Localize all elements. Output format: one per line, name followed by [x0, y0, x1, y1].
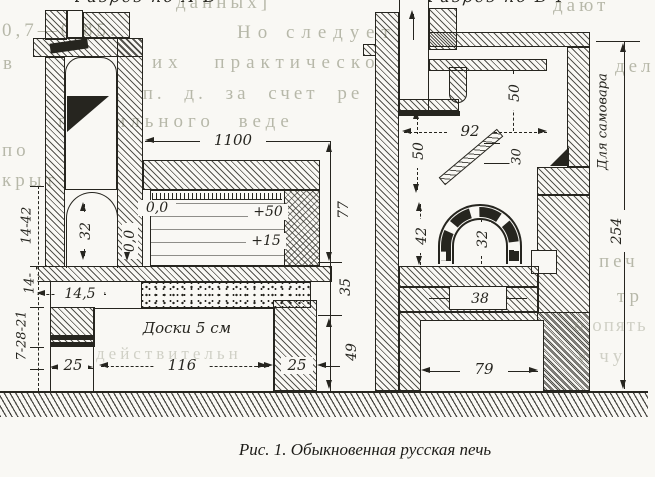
dim-total-height: 254	[609, 210, 625, 252]
pier-course-band	[50, 335, 95, 340]
overlay-text: Но следует	[237, 23, 397, 42]
dim-base-opening: 79	[460, 361, 508, 378]
dim-line-38	[429, 298, 449, 299]
dim-arrow	[326, 143, 332, 152]
rs-top-channel-lower	[429, 59, 547, 71]
samovar-label: Для самовара	[596, 50, 611, 194]
overlay-text: их практическо	[152, 53, 381, 72]
dim-arrow	[145, 137, 154, 143]
dim-chain-14: 14-	[23, 270, 38, 298]
chain-tick	[318, 315, 342, 316]
overlay-text: о опять	[574, 316, 648, 335]
dim-chain-14-42: 14-42	[20, 200, 35, 252]
chimney-cap-right	[83, 12, 130, 38]
dim-arrow	[421, 367, 430, 373]
boards-label: Доски 5 см	[110, 320, 264, 337]
draft-arrow-icon	[409, 10, 415, 19]
right-chain-line	[330, 141, 331, 391]
dim-arch-width: 32	[475, 222, 491, 256]
pier-course-band	[50, 342, 95, 346]
level-plus15-label: +15	[246, 233, 286, 249]
dim-base-height: 49	[344, 339, 360, 365]
dim-arrow	[538, 128, 547, 134]
dim-left-opening: 25	[58, 357, 88, 374]
chain-tick	[30, 307, 44, 308]
dim-arrow	[413, 184, 419, 193]
chain-tick	[30, 266, 44, 267]
dim-right-pier: 25	[281, 357, 313, 374]
overlay-text: дел	[615, 57, 655, 76]
overlay-text: по	[2, 141, 30, 160]
oven-vault-band	[152, 193, 282, 200]
section-title-right-text: Разрез по В-Г	[428, 0, 593, 6]
chain-tick	[30, 186, 44, 187]
rs-shelf	[399, 99, 459, 111]
overlay-text: у чу	[577, 347, 626, 366]
overlay-text: действительн	[96, 345, 242, 362]
dim-mouth-width: 32	[78, 213, 94, 249]
dim-shelf-depth: 14,5	[56, 286, 104, 302]
dim-vent: 38	[463, 291, 497, 307]
rs-samovar-channel-wall	[567, 47, 590, 167]
rs-wall-nub	[363, 44, 376, 56]
dim-line-30	[484, 143, 500, 144]
overlay-text: тр	[617, 287, 643, 306]
dim-arrow	[326, 380, 332, 389]
dim-arrow	[326, 318, 332, 327]
chimney-flue-gap	[67, 10, 83, 38]
overlay-text: печ	[599, 252, 639, 271]
level-zero-label: 0,0	[138, 200, 176, 216]
dim-top-channel: 50	[507, 76, 523, 110]
rs-damper-block	[537, 167, 590, 195]
ground-hatch	[0, 391, 648, 417]
dim-arrow	[529, 367, 538, 373]
oven-top-slab	[143, 160, 320, 190]
dim-arrow	[80, 251, 86, 260]
rs-left-wall	[375, 12, 399, 391]
dim-mid-height: 35	[338, 274, 354, 300]
dim-arrow	[326, 252, 332, 261]
overlay-text: в	[3, 54, 16, 73]
rs-top-channel-upper	[429, 32, 590, 47]
level-plus50-label: +50	[248, 204, 288, 220]
dim-arrow	[402, 128, 411, 134]
rs-base-opening	[420, 320, 544, 391]
section-title-left: Разрез по А-Б	[75, 0, 250, 9]
dim-damper-slot: 30	[510, 142, 525, 172]
chain-tick	[318, 262, 342, 263]
left-pier	[50, 307, 95, 347]
samovar-damper-icon	[550, 147, 569, 166]
chain-tick	[596, 41, 640, 42]
figure-caption: Рис. 1. Обыкновенная русская печь	[65, 440, 655, 460]
chain-tick	[30, 369, 44, 370]
dim-arrow	[620, 43, 626, 52]
dim-arrow	[80, 202, 86, 211]
dim-oven-height: 77	[336, 197, 352, 223]
dim-arrow	[317, 362, 326, 368]
rs-shelf-bar	[399, 111, 460, 116]
oven-corner-block	[283, 190, 320, 266]
dim-arrow	[620, 380, 626, 389]
dim-arrow	[416, 202, 422, 211]
left-chain-line	[38, 186, 39, 391]
rs-hearth-band	[399, 266, 539, 287]
dim-arrow	[264, 362, 273, 368]
dim-total-width: 1100	[200, 132, 266, 149]
chimney-cap-left	[45, 10, 67, 40]
rs-damper-housing	[449, 67, 467, 103]
base-edge-line	[50, 282, 51, 391]
left-column-outer-wall	[45, 57, 65, 267]
hearth-slab	[36, 266, 332, 282]
right-pier	[273, 300, 317, 391]
figure-russian-stove: данных] дают 0,7—0,85. Но следует в их п…	[0, 0, 655, 477]
dim-arrow	[416, 256, 422, 265]
dim-line-38	[507, 298, 527, 299]
section-title-left-text: Разрез по А-Б	[75, 0, 250, 6]
dim-chain-7-28-21: 7-28-21	[15, 306, 30, 366]
dim-mouth-height: 42	[414, 219, 430, 253]
level-marker-icon	[124, 252, 130, 261]
dim-arrow	[413, 110, 419, 119]
dim-flue-height: 50	[411, 134, 427, 168]
chain-tick	[30, 347, 44, 348]
